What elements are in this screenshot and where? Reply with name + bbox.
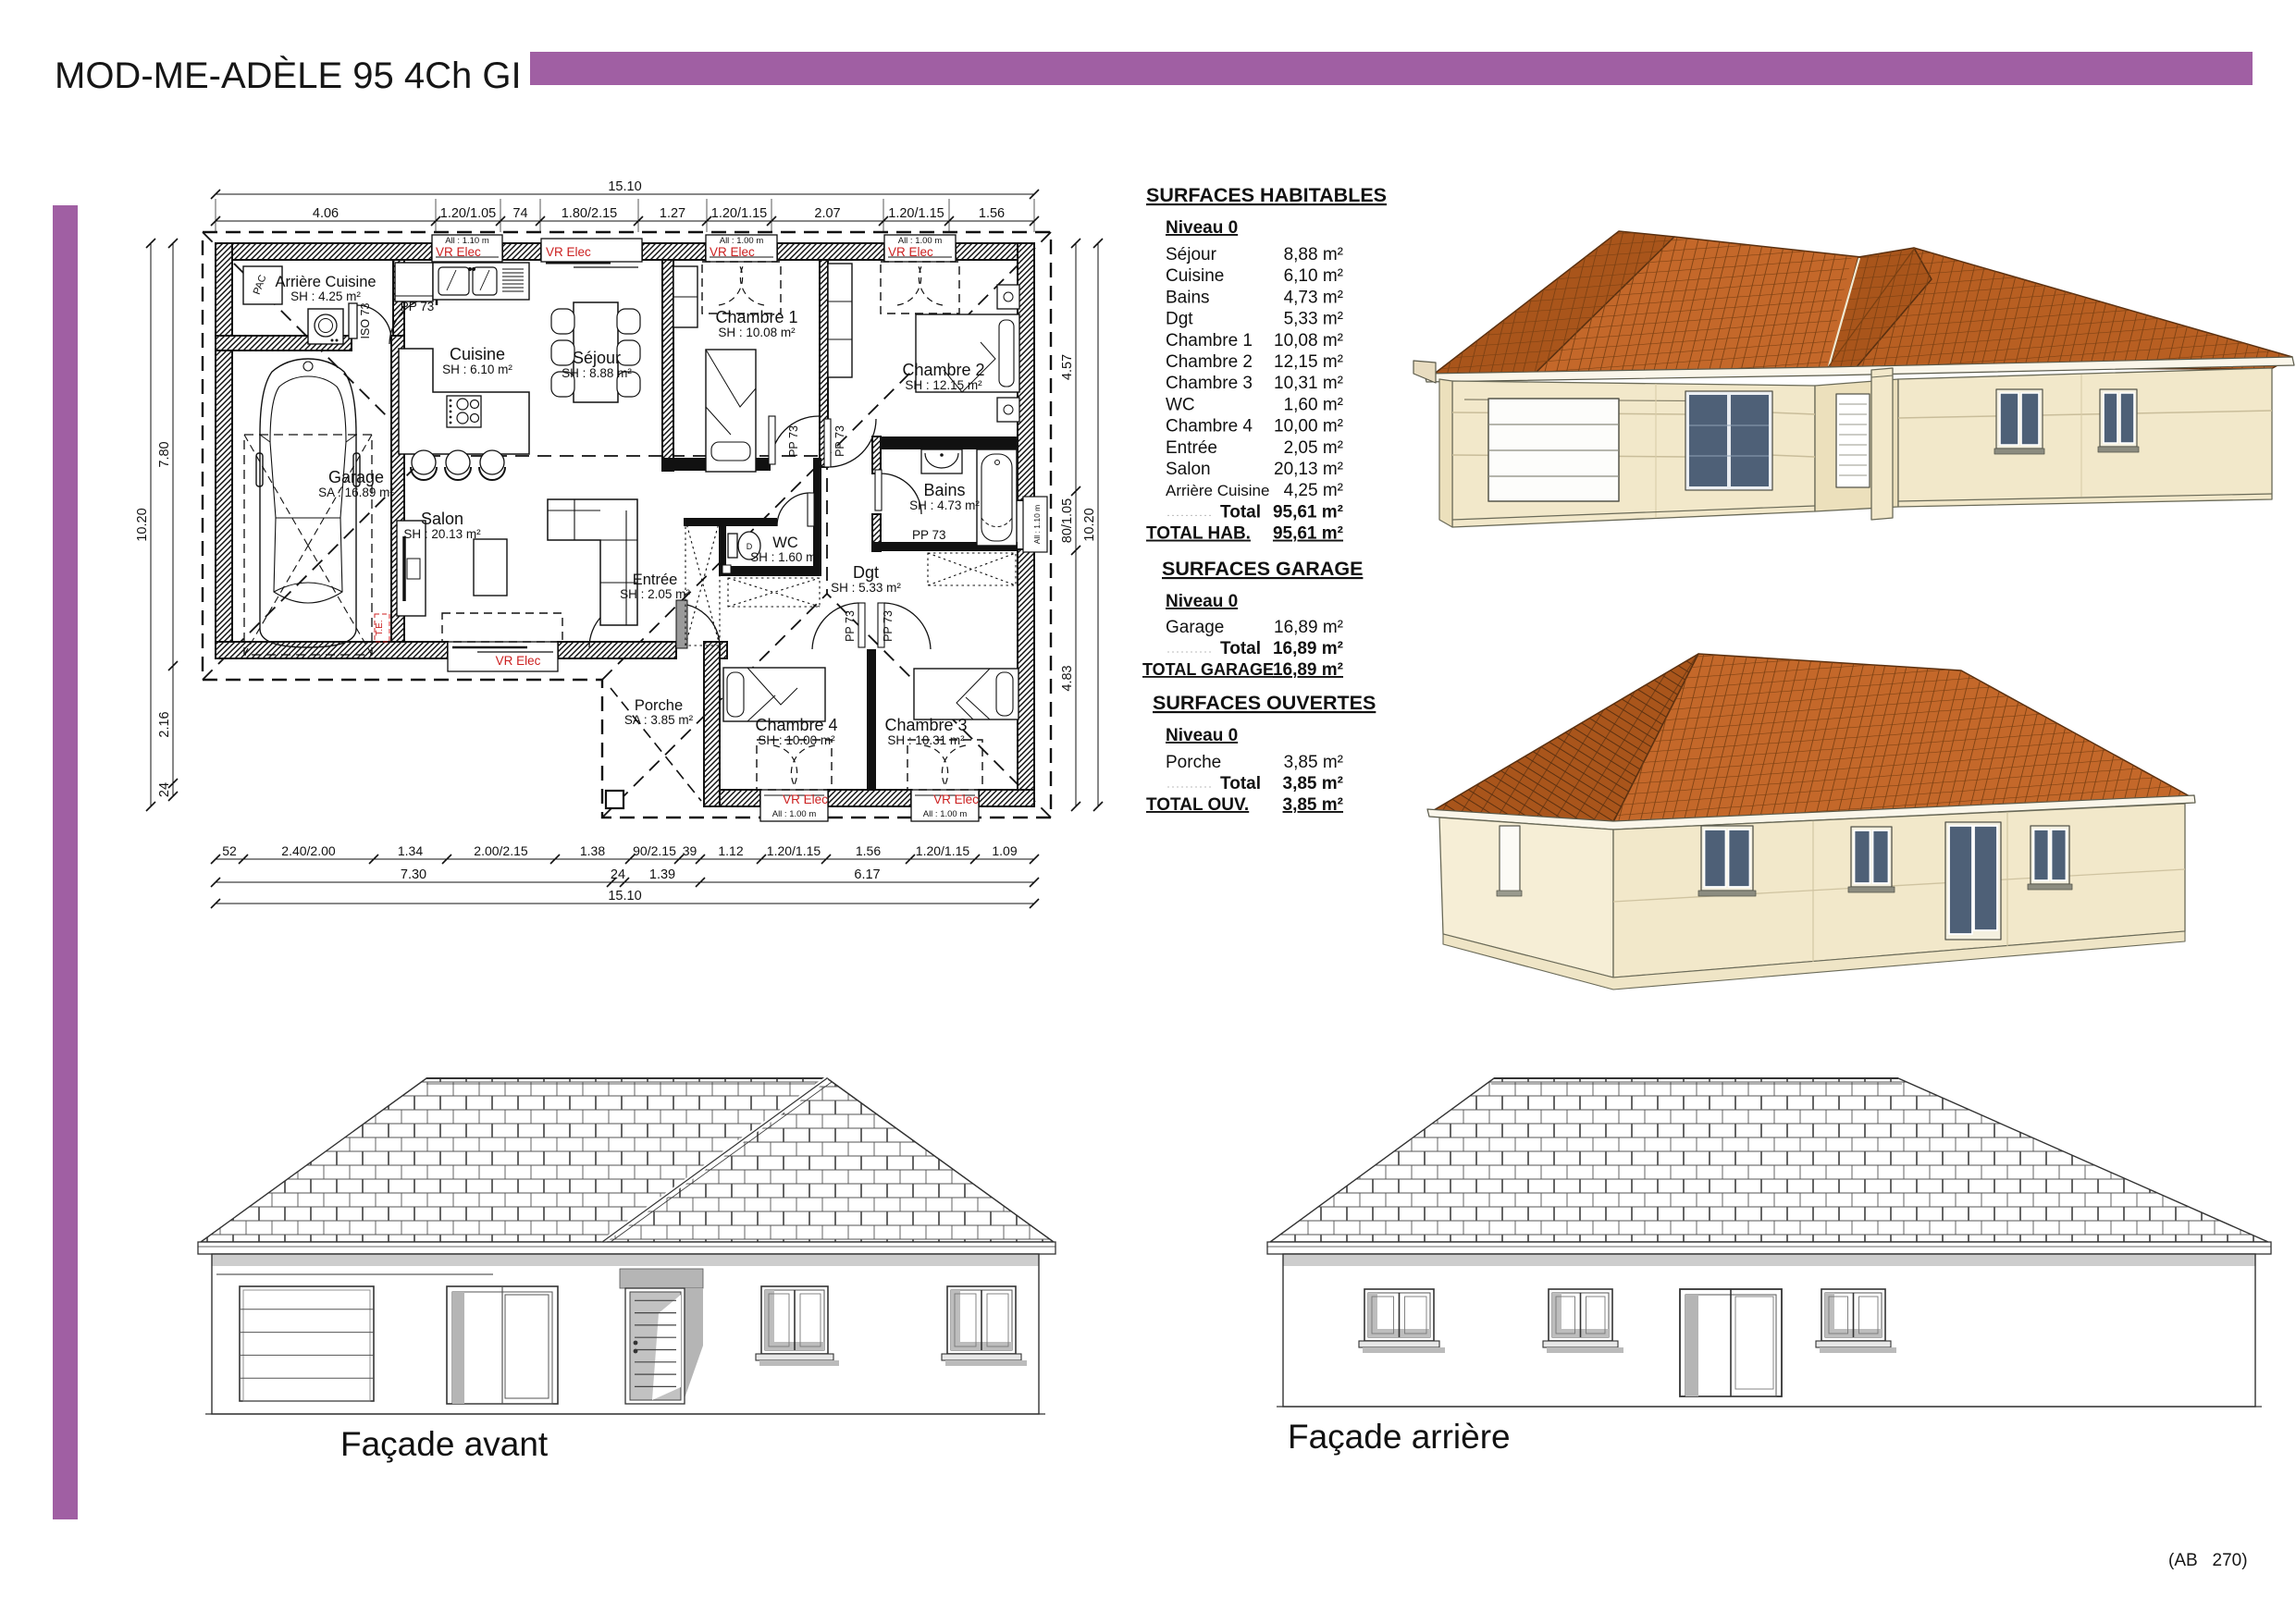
svg-text:10.20: 10.20 — [1082, 508, 1097, 541]
svg-text:1.20/1.15: 1.20/1.15 — [767, 843, 821, 858]
svg-text:ISO 73: ISO 73 — [359, 303, 372, 339]
svg-text:1.20/1.15: 1.20/1.15 — [888, 206, 944, 221]
svg-text:Chambre 2: Chambre 2 — [1166, 352, 1253, 372]
svg-text:Chambre 4: Chambre 4 — [755, 716, 837, 734]
svg-text:24: 24 — [611, 867, 625, 882]
svg-text:1.34: 1.34 — [398, 843, 423, 858]
svg-text:SH : 6.10 m²: SH : 6.10 m² — [442, 363, 512, 376]
svg-text:15.10: 15.10 — [608, 889, 641, 904]
svg-text:4.06: 4.06 — [313, 206, 339, 221]
svg-text:1.80/2.15: 1.80/2.15 — [562, 206, 617, 221]
svg-text:SH : 10.31 m²: SH : 10.31 m² — [887, 733, 965, 747]
svg-text:2.07: 2.07 — [814, 206, 840, 221]
svg-text:4.83: 4.83 — [1060, 665, 1075, 691]
svg-text:Total: Total — [1220, 774, 1261, 793]
svg-text:Façade arrière: Façade arrière — [1288, 1418, 1511, 1456]
svg-text:PP 73: PP 73 — [912, 528, 946, 542]
svg-text:PP 73: PP 73 — [787, 425, 800, 457]
svg-text:MOD-ME-ADÈLE 95 4Ch GI: MOD-ME-ADÈLE 95 4Ch GI — [55, 55, 522, 96]
svg-text:Dgt: Dgt — [853, 563, 879, 582]
svg-text:1.09: 1.09 — [992, 843, 1017, 858]
svg-text:Cuisine: Cuisine — [450, 345, 505, 363]
svg-text:SURFACES HABITABLES: SURFACES HABITABLES — [1146, 184, 1387, 206]
svg-text:1.56: 1.56 — [856, 843, 881, 858]
svg-text:TOTAL HAB.: TOTAL HAB. — [1146, 524, 1251, 544]
svg-text:Arrière Cuisine: Arrière Cuisine — [1166, 482, 1269, 499]
svg-text:Entrée: Entrée — [633, 572, 678, 588]
svg-text:Porche: Porche — [635, 697, 683, 714]
svg-text:1.20/1.05: 1.20/1.05 — [440, 206, 496, 221]
svg-text:WC: WC — [1166, 395, 1195, 414]
svg-text:2,05 m²: 2,05 m² — [1284, 438, 1343, 458]
svg-text:SURFACES GARAGE: SURFACES GARAGE — [1162, 558, 1363, 580]
svg-text:SH : 10.00 m²: SH : 10.00 m² — [758, 733, 835, 747]
svg-text:24: 24 — [157, 782, 172, 797]
svg-text:39: 39 — [683, 843, 697, 858]
svg-text:1.27: 1.27 — [660, 206, 685, 221]
svg-text:VR Elec: VR Elec — [888, 245, 933, 259]
svg-text:Niveau 0: Niveau 0 — [1166, 592, 1238, 611]
svg-text:Chambre 2: Chambre 2 — [902, 361, 984, 379]
svg-text:20,13 m²: 20,13 m² — [1274, 460, 1343, 479]
svg-text:2.00/2.15: 2.00/2.15 — [474, 843, 528, 858]
svg-text:Bains: Bains — [1166, 288, 1210, 307]
svg-text:7.80: 7.80 — [157, 441, 172, 467]
svg-text:1.39: 1.39 — [649, 867, 675, 882]
svg-text:4.57: 4.57 — [1060, 354, 1075, 380]
svg-text:VR Elec: VR Elec — [496, 654, 541, 668]
svg-text:3,85 m²: 3,85 m² — [1284, 753, 1343, 772]
svg-text:Niveau 0: Niveau 0 — [1166, 218, 1238, 238]
svg-text:VR Elec: VR Elec — [710, 245, 755, 259]
svg-text:1.12: 1.12 — [718, 843, 743, 858]
svg-text:1.38: 1.38 — [580, 843, 605, 858]
svg-text:95,61 m²: 95,61 m² — [1273, 502, 1343, 522]
svg-text:5,33 m²: 5,33 m² — [1284, 310, 1343, 329]
svg-text:Salon: Salon — [1166, 460, 1211, 479]
svg-text:VR Elec: VR Elec — [436, 245, 481, 259]
svg-text:SA : 16.89 m²: SA : 16.89 m² — [318, 486, 394, 499]
svg-text:15.10: 15.10 — [608, 179, 641, 194]
svg-text:Dgt: Dgt — [1166, 310, 1193, 329]
svg-text:VR Elec: VR Elec — [933, 793, 979, 806]
svg-text:Chambre 1: Chambre 1 — [715, 308, 797, 326]
svg-text:Porche: Porche — [1166, 753, 1221, 772]
svg-text:SH : 5.33 m²: SH : 5.33 m² — [831, 581, 901, 595]
svg-text:10,31 m²: 10,31 m² — [1274, 374, 1343, 393]
svg-text:80/1.05: 80/1.05 — [1060, 498, 1075, 543]
svg-text:10,00 m²: 10,00 m² — [1274, 417, 1343, 436]
svg-text:All : 1.00 m: All : 1.00 m — [772, 809, 817, 819]
svg-text:8,88 m²: 8,88 m² — [1284, 245, 1343, 264]
svg-text:7.30: 7.30 — [401, 867, 426, 882]
svg-text:2.16: 2.16 — [157, 711, 172, 737]
svg-text:Total: Total — [1220, 639, 1261, 658]
svg-text:PP 73: PP 73 — [833, 425, 846, 457]
svg-text:Bains: Bains — [923, 481, 965, 499]
svg-text:Séjour: Séjour — [573, 349, 621, 367]
svg-text:95,61 m²: 95,61 m² — [1273, 524, 1343, 544]
svg-text:SURFACES OUVERTES: SURFACES OUVERTES — [1153, 692, 1376, 714]
svg-text:Total: Total — [1220, 502, 1261, 522]
svg-text:WC: WC — [772, 535, 798, 551]
svg-text:90/2.15: 90/2.15 — [633, 843, 676, 858]
svg-text:16,89 m²: 16,89 m² — [1273, 660, 1343, 680]
svg-text:3,85 m²: 3,85 m² — [1283, 795, 1343, 815]
svg-text:1.56: 1.56 — [979, 206, 1005, 221]
svg-text:Chambre 1: Chambre 1 — [1166, 331, 1253, 350]
svg-text:Chambre 4: Chambre 4 — [1166, 417, 1253, 436]
svg-text:SH : 2.05 m²: SH : 2.05 m² — [620, 587, 690, 601]
svg-text:Chambre 3: Chambre 3 — [1166, 374, 1253, 393]
svg-text:TOTAL GARAGE: TOTAL GARAGE — [1142, 660, 1274, 679]
svg-text:Façade avant: Façade avant — [340, 1425, 549, 1463]
svg-text:SH : 12.15 m²: SH : 12.15 m² — [905, 378, 982, 392]
svg-text:(AB 270): (AB 270) — [2168, 1551, 2248, 1570]
svg-text:Entrée: Entrée — [1166, 438, 1217, 458]
svg-text:2.40/2.00: 2.40/2.00 — [281, 843, 336, 858]
svg-text:SH : 8.88 m²: SH : 8.88 m² — [562, 366, 632, 380]
svg-text:All : 1.10 m: All : 1.10 m — [1032, 505, 1042, 545]
svg-text:10.20: 10.20 — [135, 508, 150, 541]
svg-text:1.20/1.15: 1.20/1.15 — [916, 843, 970, 858]
svg-text:SH : 20.13 m²: SH : 20.13 m² — [403, 527, 481, 541]
svg-text:52: 52 — [222, 843, 237, 858]
svg-text:Séjour: Séjour — [1166, 245, 1217, 264]
svg-text:Chambre 3: Chambre 3 — [884, 716, 967, 734]
svg-text:6.17: 6.17 — [854, 867, 880, 882]
svg-text:VR Elec: VR Elec — [546, 245, 591, 259]
svg-text:All : 1.00 m: All : 1.00 m — [923, 809, 968, 819]
svg-text:PP 73: PP 73 — [882, 610, 895, 642]
svg-text:TOTAL OUV.: TOTAL OUV. — [1146, 795, 1249, 815]
svg-text:4,25 m²: 4,25 m² — [1284, 481, 1343, 500]
svg-text:12,15 m²: 12,15 m² — [1274, 352, 1343, 372]
svg-text:SH : 4.25 m²: SH : 4.25 m² — [290, 289, 361, 303]
svg-text:Niveau 0: Niveau 0 — [1166, 726, 1238, 745]
svg-text:Garage: Garage — [328, 468, 384, 486]
svg-text:VR Elec: VR Elec — [783, 793, 828, 806]
svg-text:Cuisine: Cuisine — [1166, 266, 1224, 286]
svg-text:1.20/1.15: 1.20/1.15 — [711, 206, 767, 221]
svg-text:SH : 1.60 m²: SH : 1.60 m² — [750, 550, 821, 564]
svg-text:SH : 10.08 m²: SH : 10.08 m² — [718, 326, 796, 339]
svg-text:Arrière Cuisine: Arrière Cuisine — [275, 274, 376, 290]
svg-text:T.E.: T.E. — [375, 620, 385, 635]
svg-text:16,89 m²: 16,89 m² — [1274, 618, 1343, 637]
svg-text:74: 74 — [512, 206, 527, 221]
svg-text:SH : 4.73 m²: SH : 4.73 m² — [909, 498, 980, 512]
svg-text:SA : 3.85 m²: SA : 3.85 m² — [624, 713, 694, 727]
svg-text:4,73 m²: 4,73 m² — [1284, 288, 1343, 307]
svg-text:Garage: Garage — [1166, 618, 1224, 637]
svg-text:16,89 m²: 16,89 m² — [1273, 639, 1343, 658]
svg-text:6,10 m²: 6,10 m² — [1284, 266, 1343, 286]
svg-text:10,08 m²: 10,08 m² — [1274, 331, 1343, 350]
svg-text:1,60 m²: 1,60 m² — [1284, 395, 1343, 414]
svg-text:PP 73: PP 73 — [844, 610, 857, 642]
svg-text:Salon: Salon — [421, 510, 463, 528]
svg-text:3,85 m²: 3,85 m² — [1283, 774, 1343, 793]
